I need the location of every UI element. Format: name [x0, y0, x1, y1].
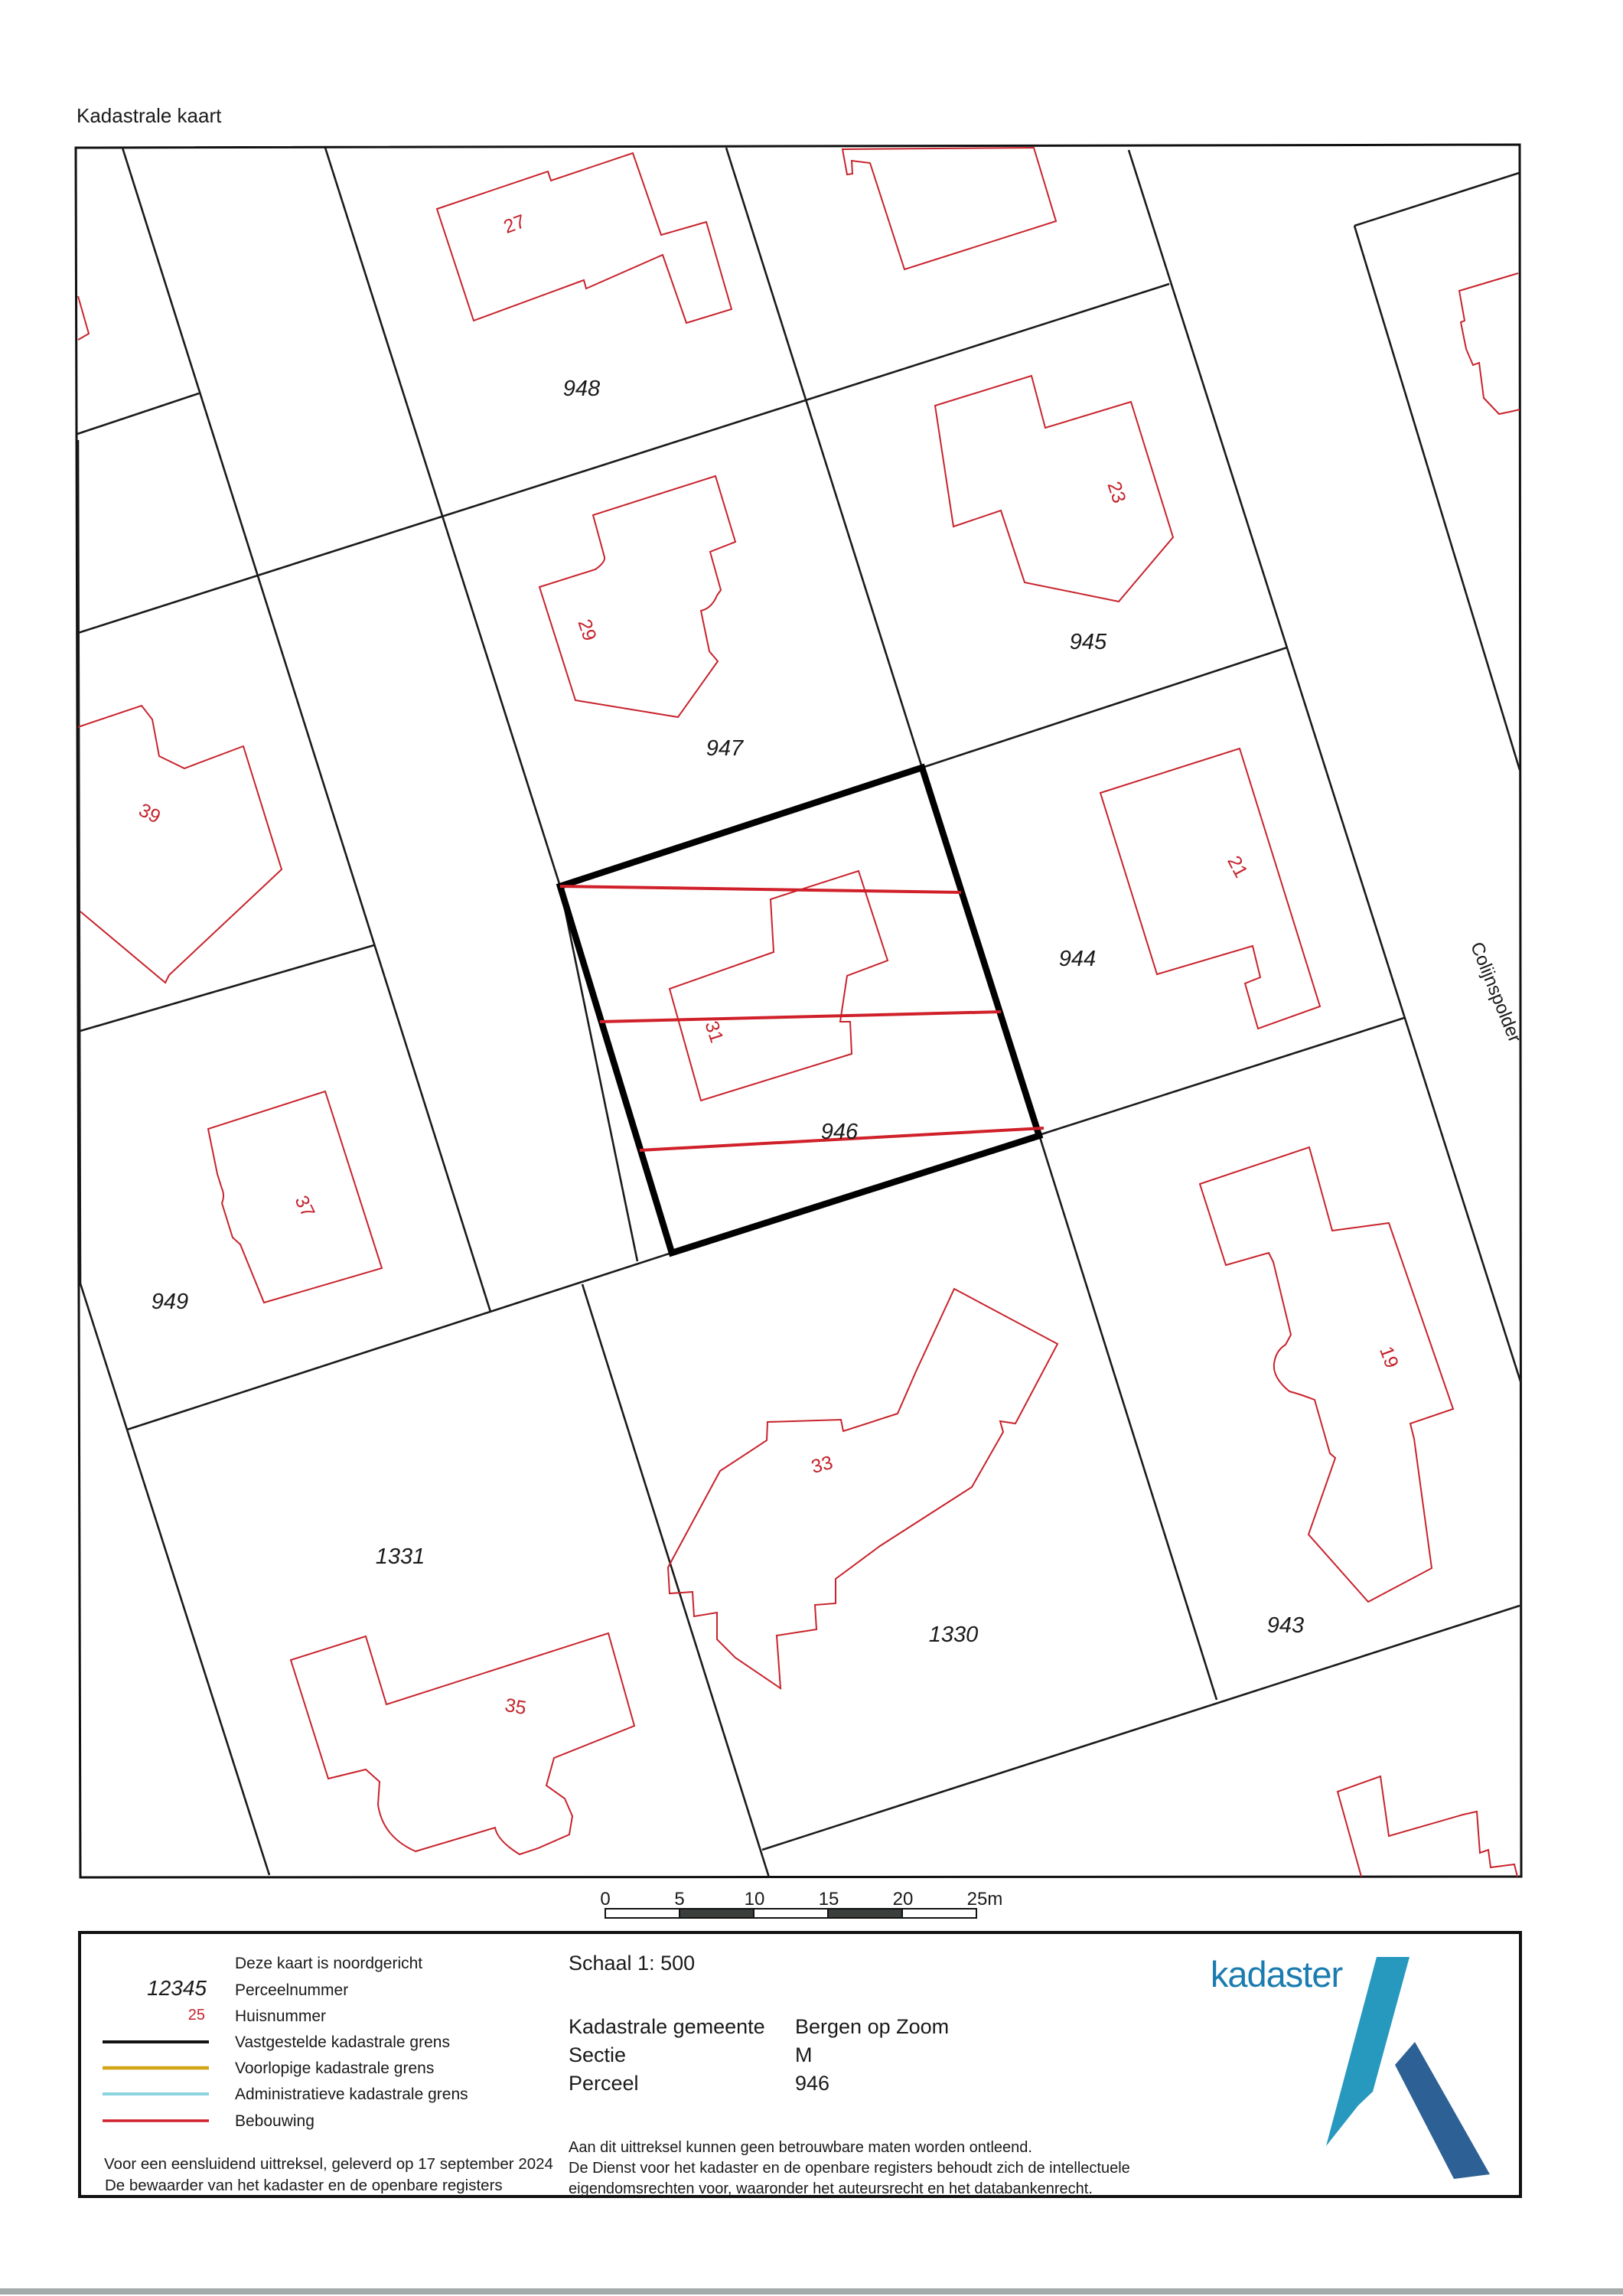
svg-text:25m: 25m — [967, 1889, 1003, 1910]
svg-text:946: 946 — [821, 1120, 859, 1144]
svg-text:946: 946 — [795, 2072, 829, 2095]
svg-text:Voor een eensluidend uittrekse: Voor een eensluidend uittreksel, gelever… — [104, 2155, 553, 2173]
svg-text:35: 35 — [504, 1694, 528, 1719]
svg-text:Kadastrale gemeente: Kadastrale gemeente — [569, 2015, 765, 2038]
svg-text:948: 948 — [563, 377, 600, 401]
svg-text:Administratieve kadastrale gre: Administratieve kadastrale grens — [235, 2086, 468, 2103]
svg-text:Aan dit uittreksel kunnen geen: Aan dit uittreksel kunnen geen betrouwba… — [569, 2139, 1032, 2156]
svg-text:20: 20 — [893, 1889, 914, 1910]
svg-text:Huisnummer: Huisnummer — [235, 2007, 326, 2025]
svg-text:1330: 1330 — [929, 1623, 979, 1647]
svg-text:0: 0 — [600, 1889, 610, 1910]
svg-text:eigendomsrechten voor, waarond: eigendomsrechten voor, waaronder het aut… — [569, 2180, 1093, 2197]
svg-text:Voorlopige kadastrale grens: Voorlopige kadastrale grens — [235, 2060, 434, 2077]
svg-text:Deze kaart is noordgericht: Deze kaart is noordgericht — [235, 1955, 422, 1972]
svg-text:Perceel: Perceel — [569, 2072, 639, 2095]
svg-text:De bewaarder van het kadaster: De bewaarder van het kadaster en de open… — [105, 2177, 503, 2194]
svg-text:949: 949 — [152, 1290, 188, 1314]
svg-text:945: 945 — [1070, 630, 1107, 654]
svg-text:M: M — [795, 2043, 813, 2066]
svg-text:Bebouwing: Bebouwing — [235, 2112, 314, 2130]
svg-text:15: 15 — [819, 1889, 839, 1910]
svg-text:25: 25 — [188, 2007, 205, 2024]
svg-text:1331: 1331 — [376, 1544, 425, 1569]
svg-text:Kadastrale kaart: Kadastrale kaart — [77, 104, 222, 127]
svg-text:Perceelnummer: Perceelnummer — [235, 1981, 348, 1999]
svg-text:kadaster: kadaster — [1211, 1954, 1343, 1994]
svg-text:10: 10 — [745, 1889, 765, 1910]
svg-text:947: 947 — [706, 736, 745, 761]
svg-text:Schaal 1: 500: Schaal 1: 500 — [569, 1952, 695, 1975]
svg-text:De Dienst voor het kadaster en: De Dienst voor het kadaster en de openba… — [569, 2160, 1130, 2177]
svg-text:943: 943 — [1267, 1613, 1304, 1638]
svg-text:Vastgestelde kadastrale grens: Vastgestelde kadastrale grens — [235, 2033, 450, 2051]
svg-text:12345: 12345 — [147, 1976, 207, 2000]
svg-text:Sectie: Sectie — [569, 2043, 626, 2066]
svg-text:944: 944 — [1059, 947, 1096, 971]
svg-text:Bergen op Zoom: Bergen op Zoom — [795, 2015, 949, 2038]
svg-text:5: 5 — [674, 1889, 684, 1910]
